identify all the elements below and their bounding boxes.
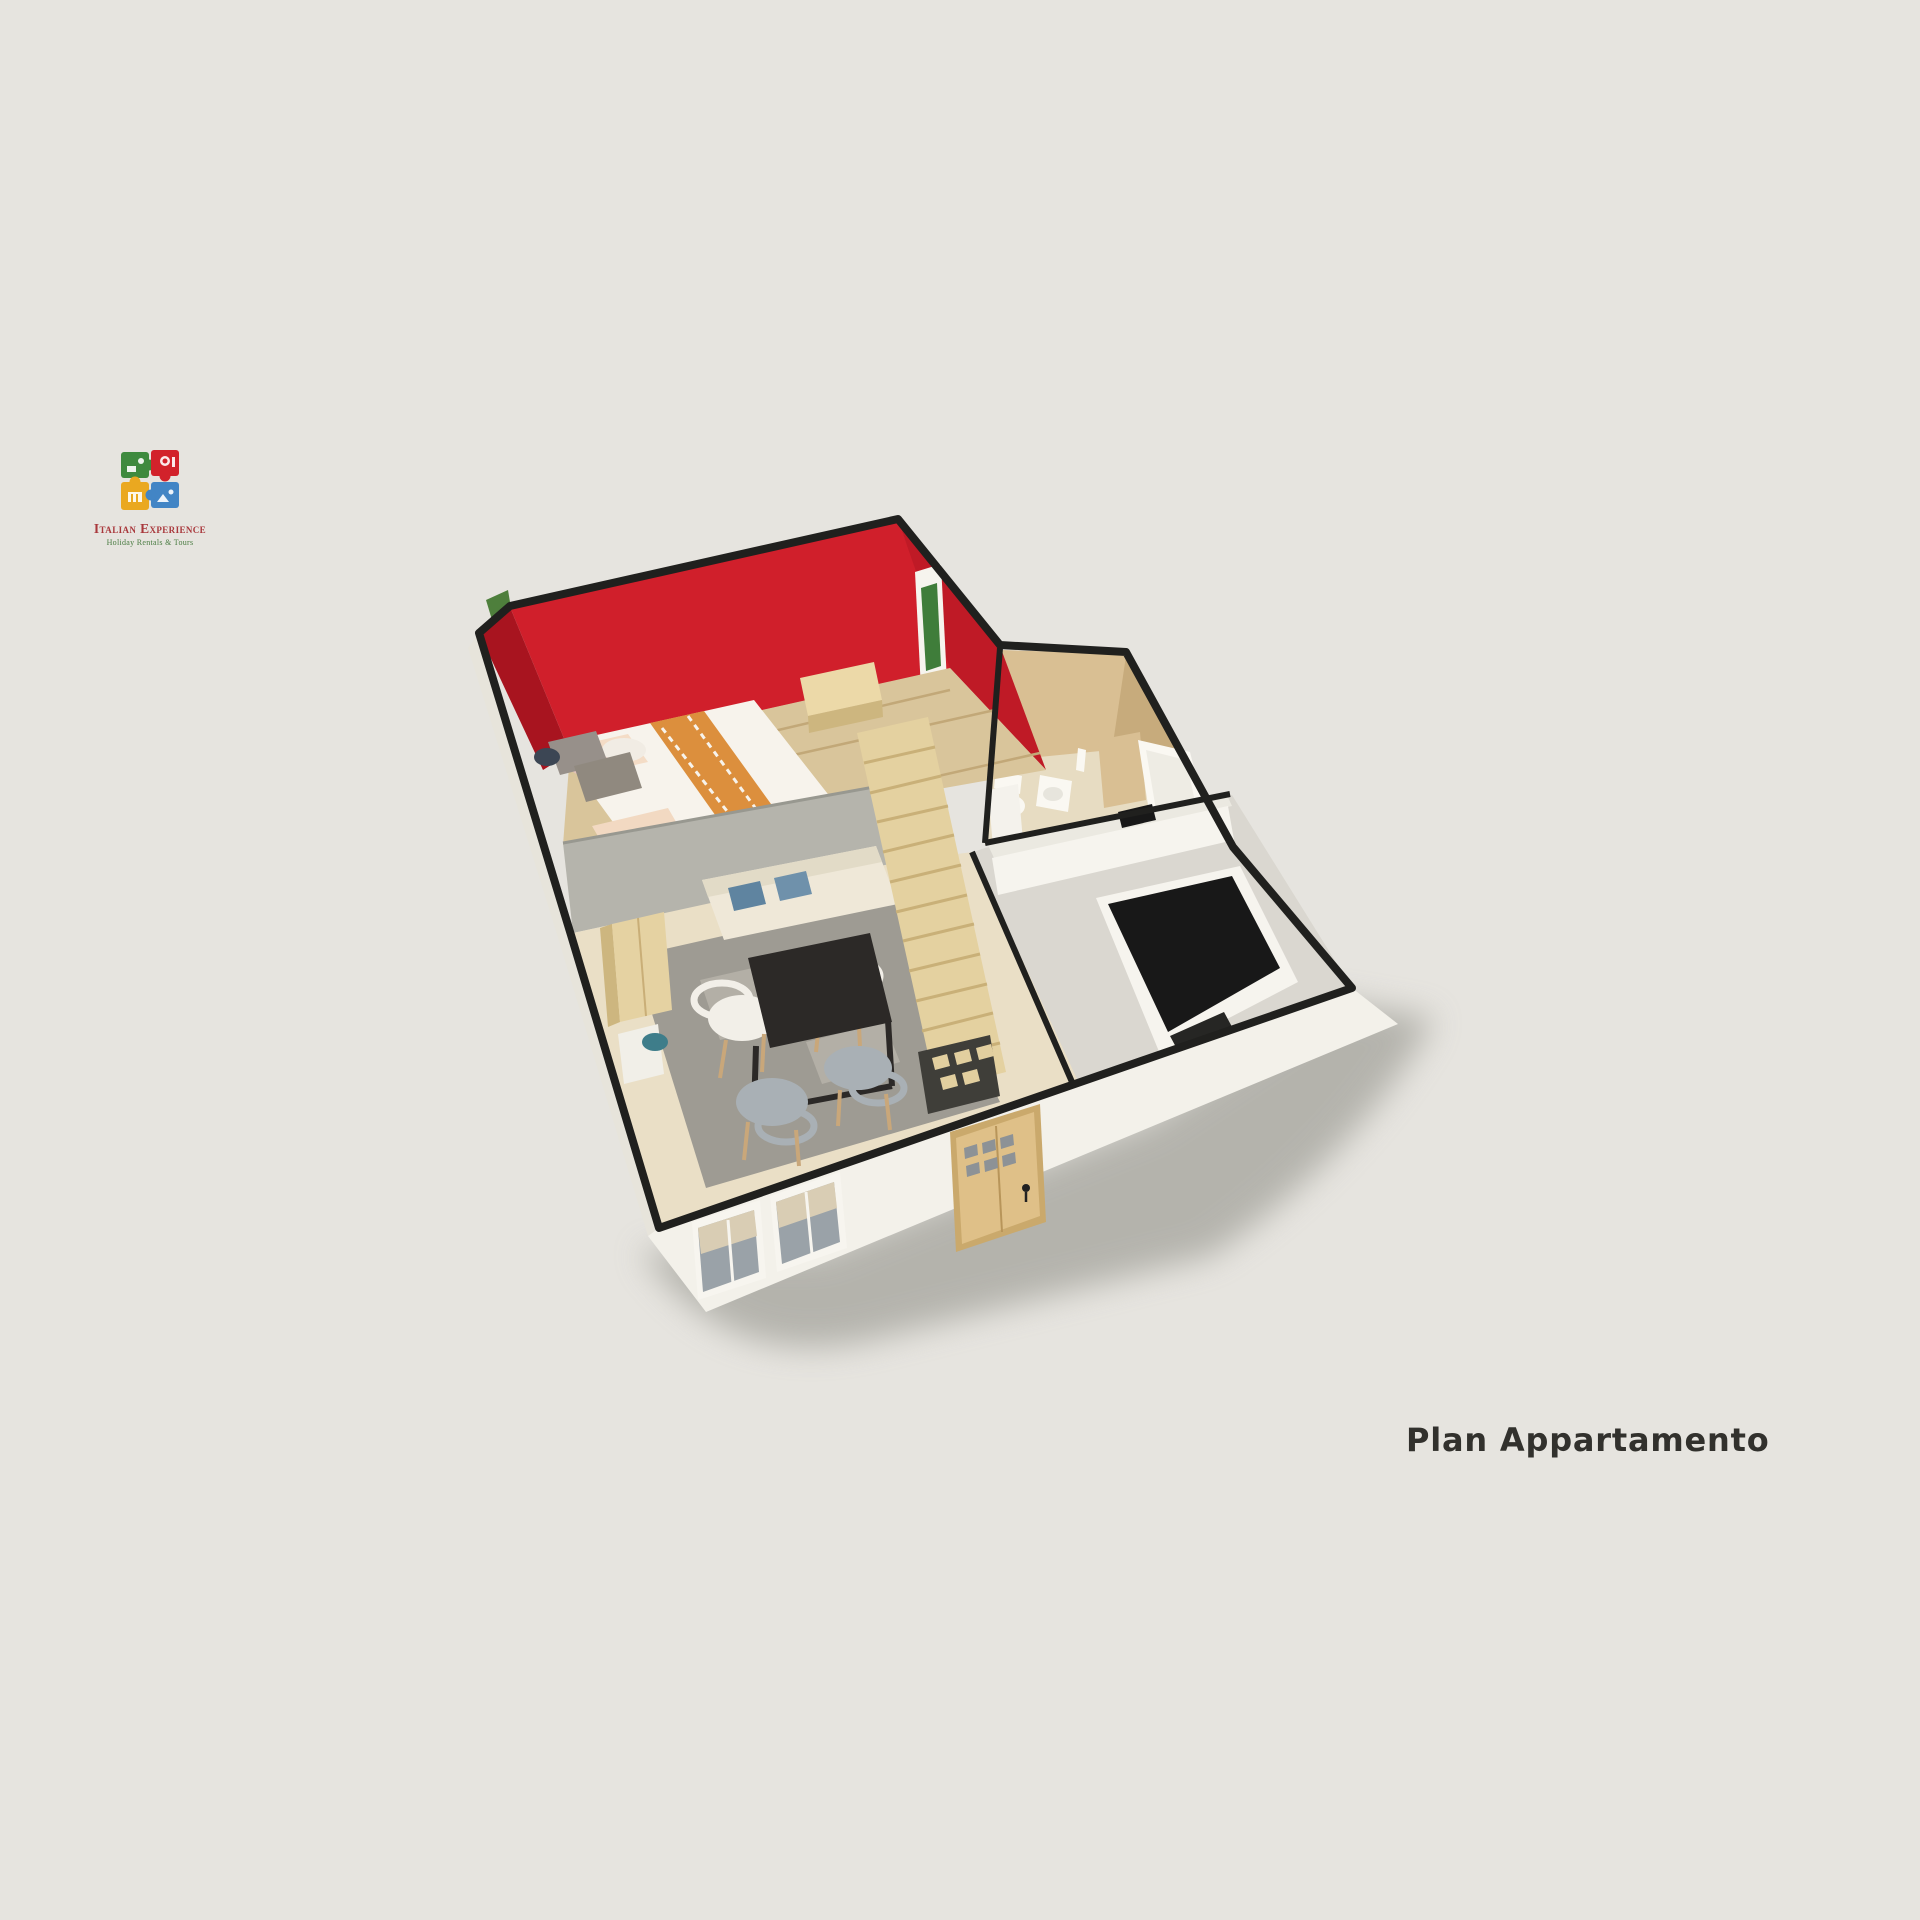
page: Italian Experience Holiday Rentals & Tou… xyxy=(0,0,1920,1920)
dining-chair-gray2-seat xyxy=(824,1046,892,1090)
door-handle xyxy=(1022,1184,1030,1192)
plan-caption: Plan Appartamento xyxy=(1406,1421,1770,1459)
dining-chair-gray-seat xyxy=(736,1078,808,1126)
sink-basin xyxy=(1043,787,1063,801)
navy-throw xyxy=(534,748,560,766)
teal-bag xyxy=(642,1033,668,1051)
apartment-3d-floorplan xyxy=(0,0,1920,1920)
white-cabinet xyxy=(618,1024,664,1084)
